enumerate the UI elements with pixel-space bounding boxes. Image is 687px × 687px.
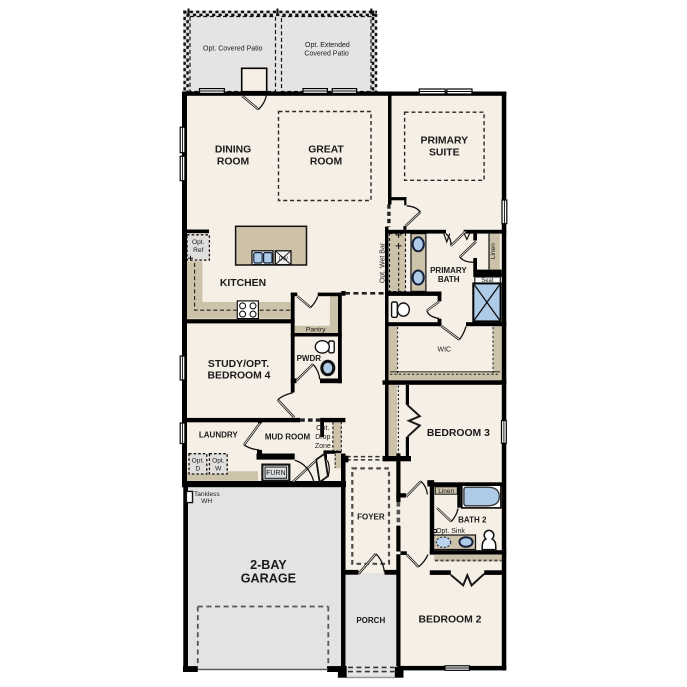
svg-text:BATH: BATH	[438, 275, 460, 284]
svg-text:Seat: Seat	[481, 278, 494, 284]
svg-text:Opt.: Opt.	[316, 425, 329, 432]
svg-text:Covered Patio: Covered Patio	[304, 50, 348, 57]
svg-text:PRIMARY: PRIMARY	[421, 136, 469, 147]
svg-text:GARAGE: GARAGE	[241, 571, 296, 585]
svg-text:ROOM: ROOM	[217, 156, 249, 167]
svg-text:Linen: Linen	[490, 243, 497, 259]
svg-text:Opt. Sink: Opt. Sink	[436, 528, 465, 535]
svg-text:DW: DW	[279, 256, 289, 262]
svg-text:W: W	[215, 465, 222, 472]
svg-text:Ref: Ref	[193, 247, 203, 254]
svg-text:FOYER: FOYER	[357, 513, 385, 522]
svg-text:DINING: DINING	[215, 145, 251, 156]
svg-text:Opt. Covered Patio: Opt. Covered Patio	[203, 46, 263, 53]
svg-text:Opt. Extended: Opt. Extended	[305, 42, 350, 49]
svg-text:BEDROOM 2: BEDROOM 2	[419, 615, 482, 626]
svg-text:PORCH: PORCH	[356, 616, 385, 625]
svg-text:BEDROOM 4: BEDROOM 4	[208, 371, 271, 382]
svg-text:BATH 2: BATH 2	[458, 515, 487, 524]
svg-text:SUITE: SUITE	[429, 148, 460, 159]
svg-text:D: D	[196, 465, 201, 472]
svg-text:Drop: Drop	[315, 434, 330, 441]
svg-text:WH: WH	[201, 498, 212, 505]
svg-text:Opt. Wet Bar: Opt. Wet Bar	[379, 242, 386, 283]
svg-text:LAUNDRY: LAUNDRY	[199, 431, 238, 440]
svg-text:PWDR: PWDR	[297, 354, 322, 363]
svg-text:Opt.: Opt.	[192, 239, 205, 246]
svg-text:MUD ROOM: MUD ROOM	[265, 433, 311, 442]
svg-text:ROOM: ROOM	[310, 156, 342, 167]
svg-text:PRIMARY: PRIMARY	[430, 266, 467, 275]
svg-text:KITCHEN: KITCHEN	[220, 278, 266, 289]
svg-text:Zone: Zone	[315, 443, 331, 450]
svg-text:GREAT: GREAT	[308, 145, 344, 156]
svg-text:FURN: FURN	[266, 470, 285, 477]
svg-text:Opt.: Opt.	[212, 457, 225, 464]
svg-text:STUDY/OPT.: STUDY/OPT.	[208, 359, 269, 370]
svg-text:Pantry: Pantry	[306, 327, 326, 334]
svg-text:Opt.: Opt.	[192, 457, 205, 464]
svg-text:WIC: WIC	[437, 347, 451, 354]
svg-text:Linen: Linen	[438, 488, 454, 495]
svg-text:2-BAY: 2-BAY	[250, 558, 287, 572]
svg-text:BEDROOM 3: BEDROOM 3	[427, 428, 490, 439]
